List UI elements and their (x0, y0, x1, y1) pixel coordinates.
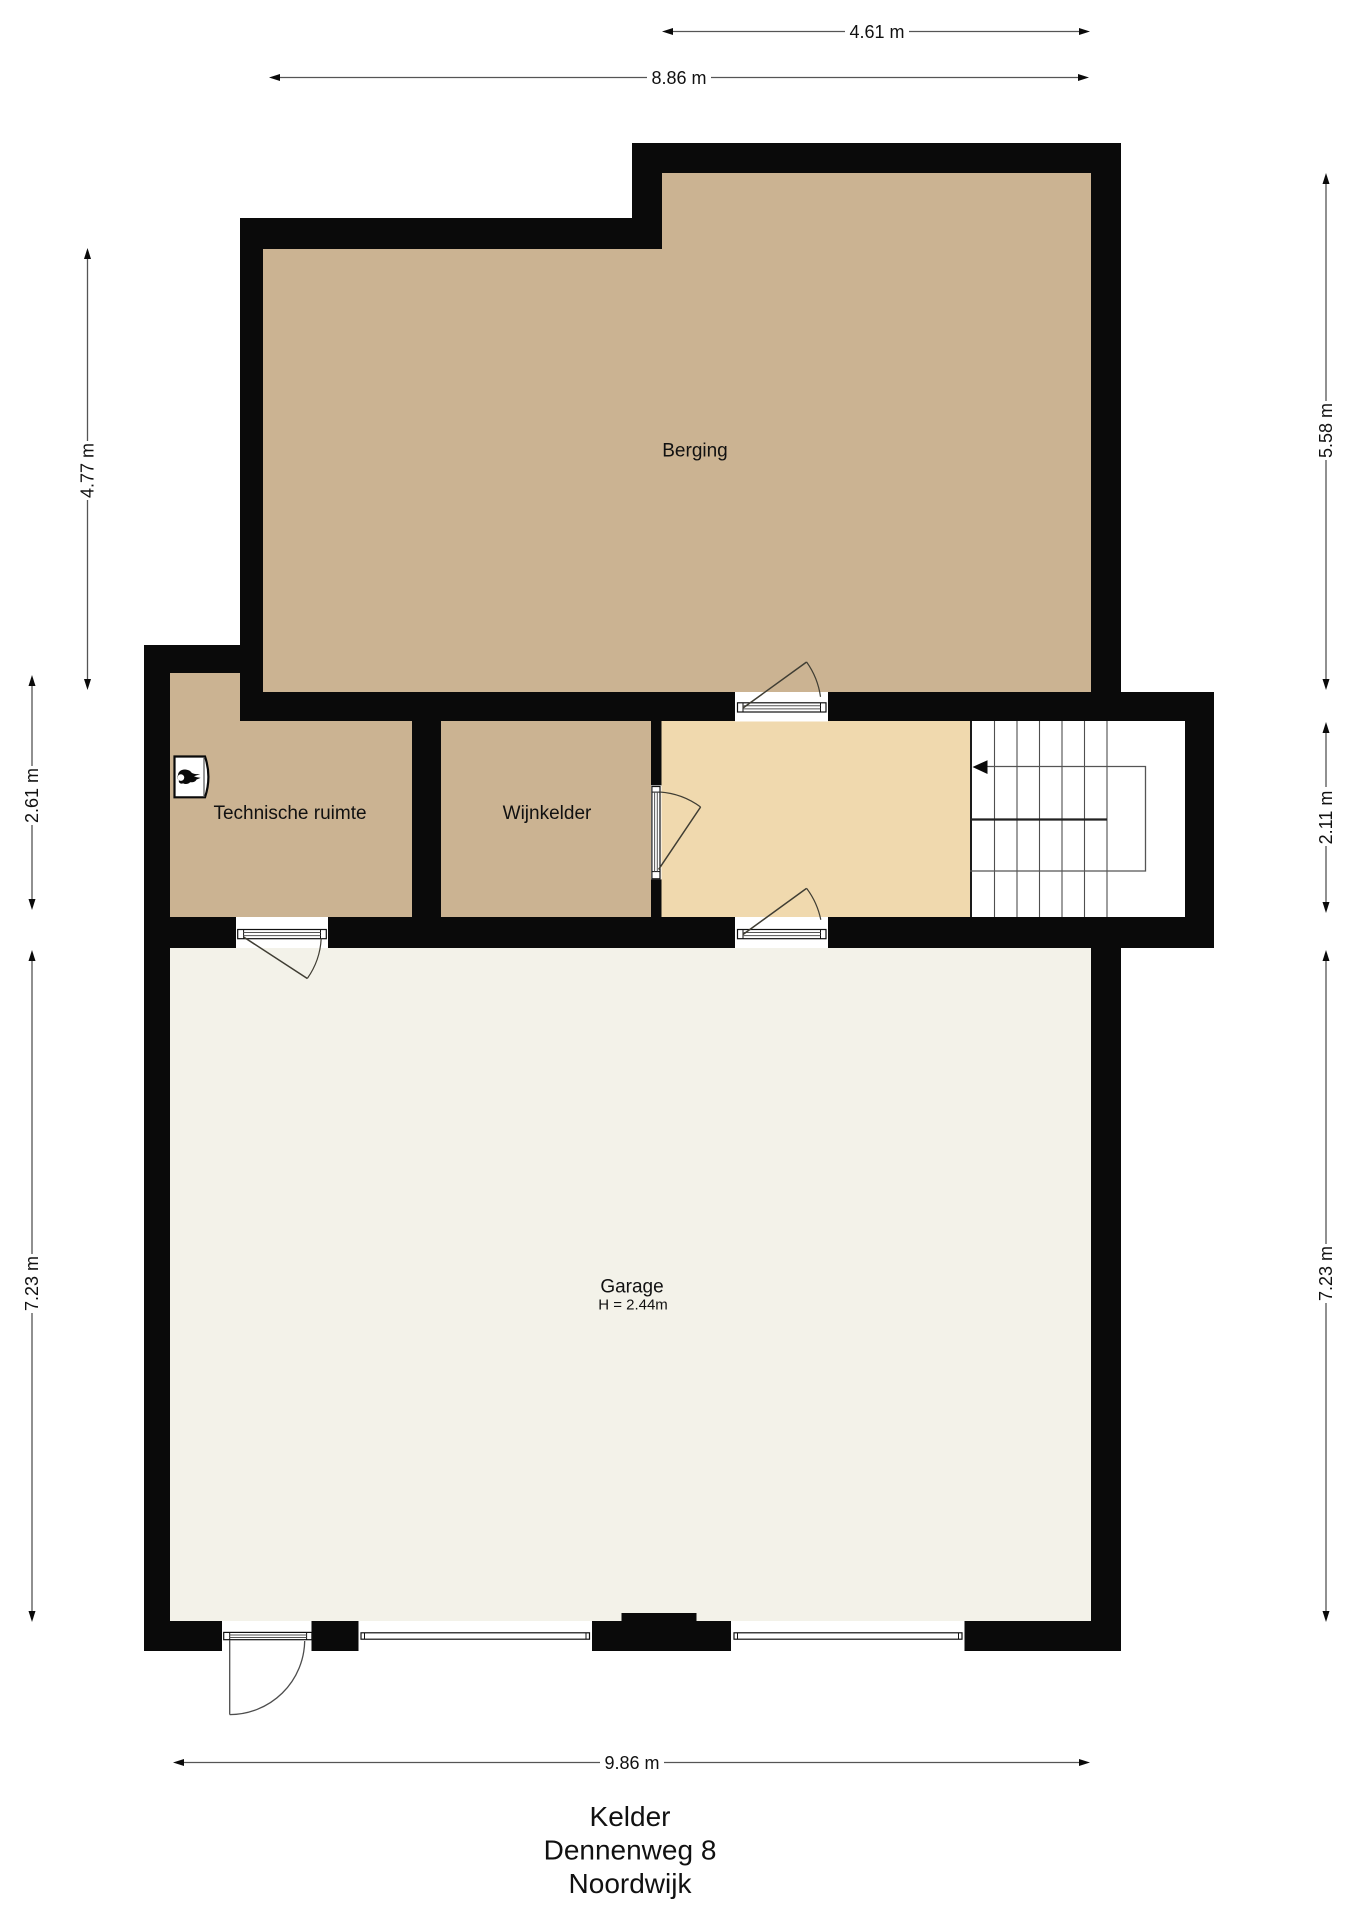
svg-text:2.61 m: 2.61 m (22, 768, 42, 823)
svg-text:8.86 m: 8.86 m (651, 68, 706, 88)
svg-text:5.58 m: 5.58 m (1316, 403, 1336, 458)
svg-text:H = 2.44m: H = 2.44m (598, 1297, 668, 1314)
svg-text:Wijnkelder: Wijnkelder (503, 803, 592, 824)
svg-text:Technische ruimte: Technische ruimte (213, 803, 366, 824)
svg-text:Garage: Garage (600, 1277, 663, 1298)
svg-text:Berging: Berging (662, 441, 728, 462)
svg-text:Dennenweg 8: Dennenweg 8 (544, 1835, 717, 1866)
svg-text:7.23 m: 7.23 m (1316, 1246, 1336, 1301)
svg-text:9.86 m: 9.86 m (604, 1753, 659, 1773)
svg-text:7.23 m: 7.23 m (22, 1256, 42, 1311)
svg-text:Noordwijk: Noordwijk (569, 1868, 693, 1899)
svg-text:4.61 m: 4.61 m (849, 22, 904, 42)
svg-text:2.11 m: 2.11 m (1316, 791, 1336, 845)
svg-text:4.77 m: 4.77 m (78, 443, 98, 498)
svg-text:Kelder: Kelder (590, 1801, 671, 1832)
